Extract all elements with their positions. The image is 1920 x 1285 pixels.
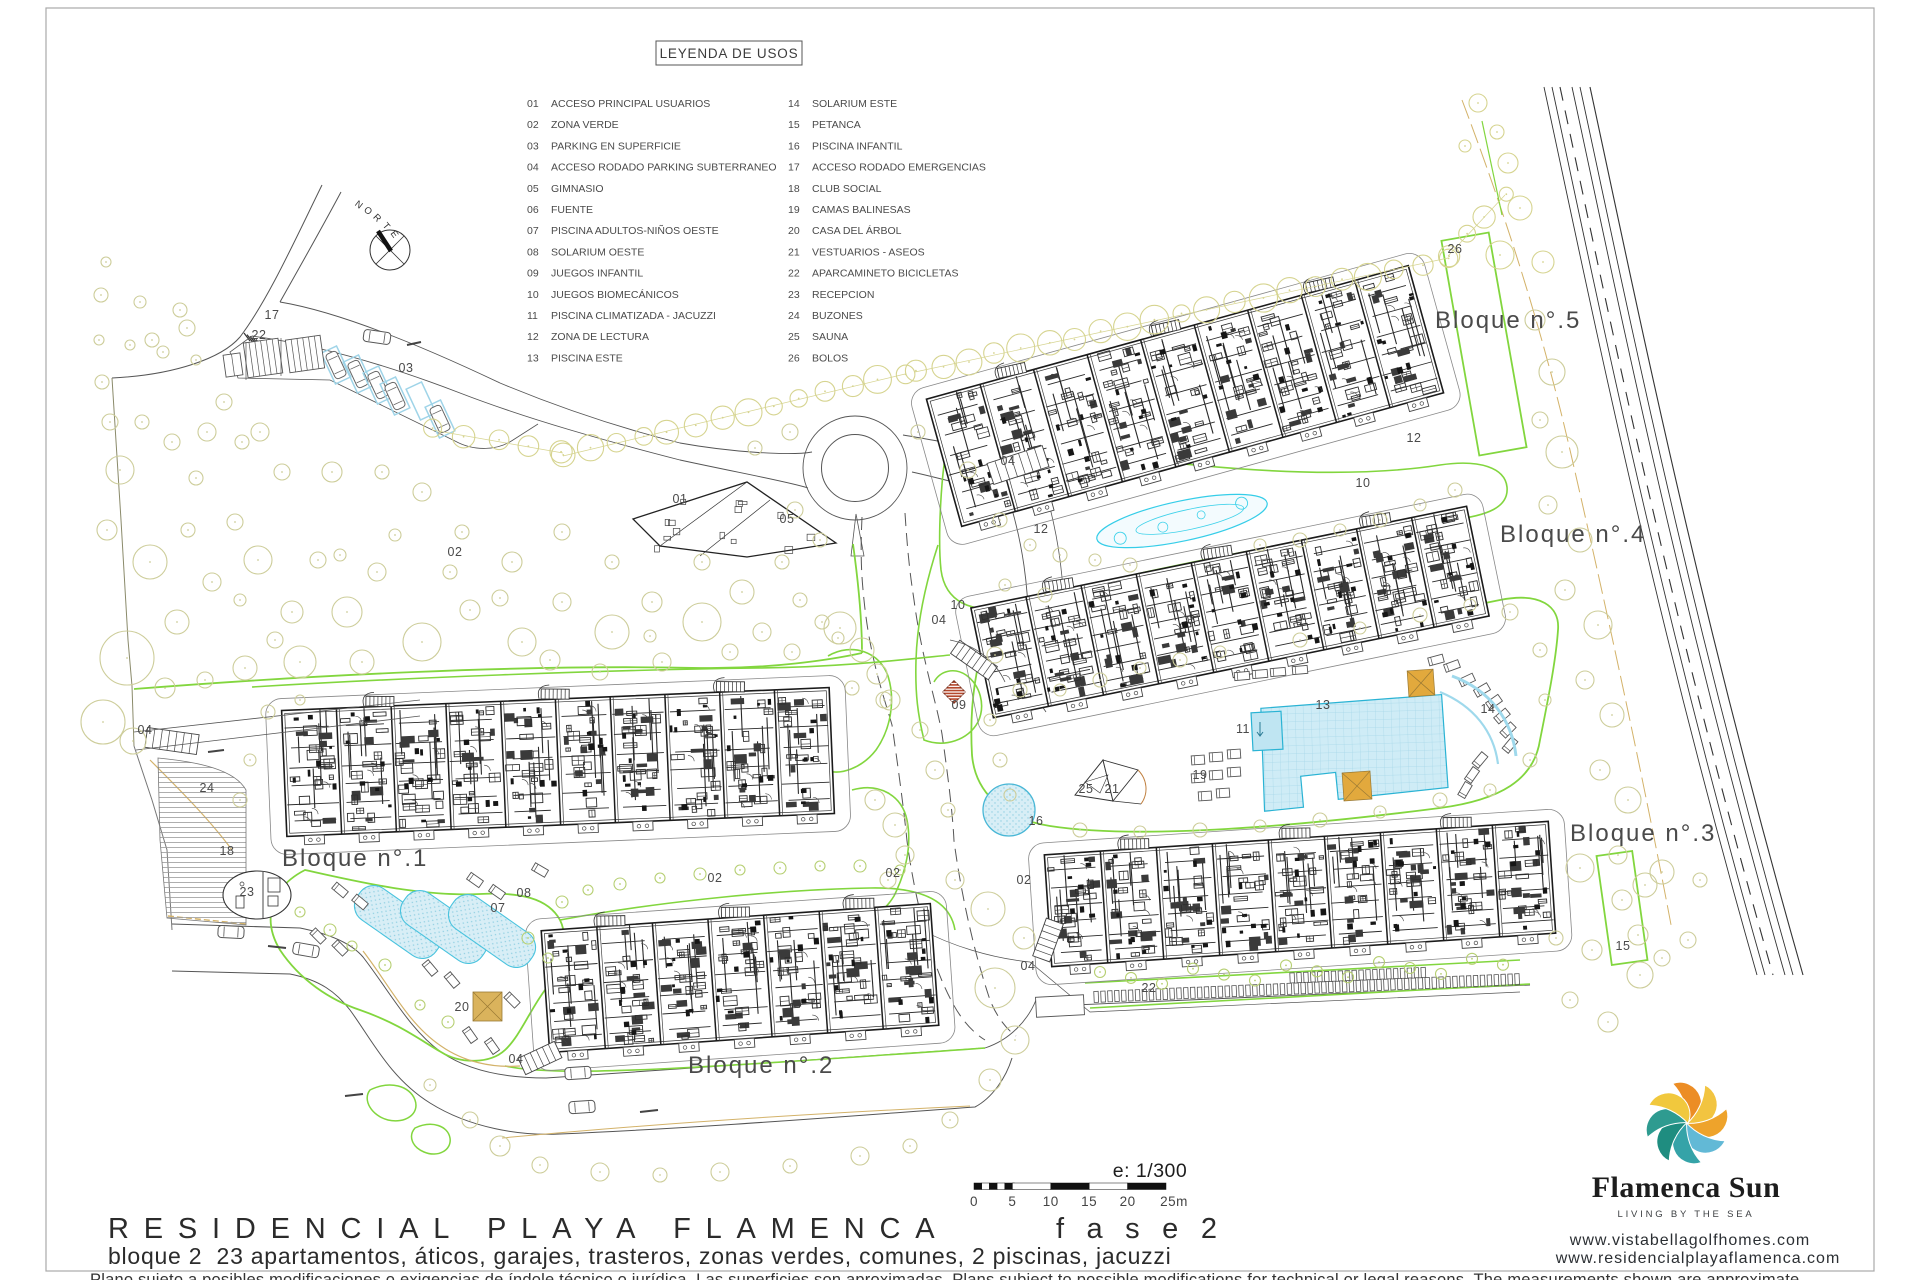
svg-text:PISCINA CLIMATIZADA - JACUZZI: PISCINA CLIMATIZADA - JACUZZI bbox=[551, 310, 716, 322]
svg-text:PISCINA ESTE: PISCINA ESTE bbox=[551, 352, 623, 364]
svg-text:14: 14 bbox=[788, 98, 800, 110]
svg-text:19: 19 bbox=[1193, 768, 1208, 782]
svg-text:10: 10 bbox=[951, 598, 966, 612]
svg-text:02: 02 bbox=[708, 871, 723, 885]
svg-text:21: 21 bbox=[1105, 782, 1120, 796]
svg-text:26: 26 bbox=[1448, 242, 1463, 256]
svg-text:ACCESO PRINCIPAL USUARIOS: ACCESO PRINCIPAL USUARIOS bbox=[551, 98, 710, 110]
svg-text:RESIDENCIAL PLAYA FLAMENCA: RESIDENCIAL PLAYA FLAMENCA bbox=[108, 1213, 949, 1245]
svg-text:12: 12 bbox=[1034, 522, 1049, 536]
svg-text:02: 02 bbox=[1017, 873, 1032, 887]
svg-text:24: 24 bbox=[788, 310, 800, 322]
svg-text:BUZONES: BUZONES bbox=[812, 310, 863, 322]
svg-text:04: 04 bbox=[138, 723, 153, 737]
svg-text:02: 02 bbox=[886, 866, 901, 880]
svg-text:10: 10 bbox=[1356, 476, 1371, 490]
svg-text:ZONA VERDE: ZONA VERDE bbox=[551, 119, 619, 131]
svg-text:FUENTE: FUENTE bbox=[551, 204, 593, 216]
svg-text:SOLARIUM ESTE: SOLARIUM ESTE bbox=[812, 98, 897, 110]
svg-text:ZONA DE LECTURA: ZONA DE LECTURA bbox=[551, 331, 649, 343]
svg-text:VESTUARIOS - ASEOS: VESTUARIOS - ASEOS bbox=[812, 246, 925, 258]
svg-text:16: 16 bbox=[1029, 814, 1044, 828]
svg-text:LIVING BY THE SEA: LIVING BY THE SEA bbox=[1617, 1209, 1754, 1220]
svg-text:02: 02 bbox=[448, 545, 463, 559]
svg-text:01: 01 bbox=[673, 492, 688, 506]
svg-text:Flamenca Sun: Flamenca Sun bbox=[1592, 1171, 1781, 1204]
svg-text:JUEGOS INFANTIL: JUEGOS INFANTIL bbox=[551, 268, 643, 280]
svg-text:10: 10 bbox=[527, 289, 539, 301]
svg-text:05: 05 bbox=[527, 183, 539, 195]
svg-text:08: 08 bbox=[527, 246, 539, 258]
svg-text:CAMAS BALINESAS: CAMAS BALINESAS bbox=[812, 204, 911, 216]
svg-text:06: 06 bbox=[527, 204, 539, 216]
svg-text:04: 04 bbox=[509, 1052, 524, 1066]
svg-text:25: 25 bbox=[1079, 782, 1094, 796]
svg-text:0: 0 bbox=[970, 1194, 978, 1209]
svg-text:11: 11 bbox=[527, 310, 538, 322]
svg-text:20: 20 bbox=[1120, 1194, 1136, 1209]
svg-text:GIMNASIO: GIMNASIO bbox=[551, 183, 604, 195]
svg-text:09: 09 bbox=[527, 268, 539, 280]
svg-text:25m: 25m bbox=[1160, 1194, 1188, 1209]
svg-text:07: 07 bbox=[527, 225, 539, 237]
svg-text:5: 5 bbox=[1008, 1194, 1016, 1209]
svg-text:10: 10 bbox=[1043, 1194, 1059, 1209]
svg-text:18: 18 bbox=[788, 183, 800, 195]
svg-text:21: 21 bbox=[788, 246, 800, 258]
svg-text:PISCINA INFANTIL: PISCINA INFANTIL bbox=[812, 140, 903, 152]
svg-text:Bloque n°.4: Bloque n°.4 bbox=[1500, 521, 1646, 548]
svg-text:Plano sujeto a posibles modifi: Plano sujeto a posibles modificaciones o… bbox=[90, 1271, 1804, 1280]
svg-text:16: 16 bbox=[788, 140, 800, 152]
svg-text:LEYENDA DE USOS: LEYENDA DE USOS bbox=[660, 46, 799, 61]
svg-text:04: 04 bbox=[932, 613, 947, 627]
svg-text:15: 15 bbox=[1081, 1194, 1097, 1209]
svg-text:14: 14 bbox=[1481, 702, 1496, 716]
svg-text:08: 08 bbox=[517, 886, 532, 900]
svg-text:03: 03 bbox=[527, 140, 539, 152]
svg-text:ACCESO RODADO EMERGENCIAS: ACCESO RODADO EMERGENCIAS bbox=[812, 162, 986, 174]
svg-text:22: 22 bbox=[788, 268, 800, 280]
svg-text:05: 05 bbox=[780, 512, 795, 526]
svg-text:fase2: fase2 bbox=[1056, 1213, 1239, 1245]
svg-text:25: 25 bbox=[788, 331, 800, 343]
svg-text:22: 22 bbox=[252, 328, 267, 342]
svg-text:13: 13 bbox=[527, 352, 539, 364]
svg-text:04: 04 bbox=[1021, 959, 1036, 973]
svg-text:20: 20 bbox=[455, 1000, 470, 1014]
svg-text:17: 17 bbox=[788, 162, 800, 174]
svg-text:01: 01 bbox=[527, 98, 539, 110]
svg-text:23: 23 bbox=[788, 289, 800, 301]
svg-text:12: 12 bbox=[527, 331, 539, 343]
svg-text:PETANCA: PETANCA bbox=[812, 119, 861, 131]
svg-text:CASA DEL ÁRBOL: CASA DEL ÁRBOL bbox=[812, 224, 902, 237]
svg-text:22: 22 bbox=[1142, 981, 1157, 995]
svg-text:www.residencialplayaflamenca.c: www.residencialplayaflamenca.com bbox=[1555, 1250, 1841, 1267]
svg-text:12: 12 bbox=[1407, 431, 1422, 445]
svg-text:20: 20 bbox=[788, 225, 800, 237]
svg-text:23: 23 bbox=[240, 885, 255, 899]
svg-text:19: 19 bbox=[788, 204, 800, 216]
svg-text:Bloque n°.1: Bloque n°.1 bbox=[282, 845, 428, 872]
svg-text:Bloque n°.3: Bloque n°.3 bbox=[1570, 820, 1716, 847]
svg-text:04: 04 bbox=[1001, 454, 1016, 468]
svg-text:15: 15 bbox=[1616, 939, 1631, 953]
svg-text:CLUB SOCIAL: CLUB SOCIAL bbox=[812, 183, 882, 195]
svg-text:BOLOS: BOLOS bbox=[812, 352, 848, 364]
svg-text:11: 11 bbox=[1236, 722, 1250, 736]
svg-text:18: 18 bbox=[220, 844, 235, 858]
svg-text:bloque 2 23 apartamentos, áti: bloque 2 23 apartamentos, áticos, garaje… bbox=[108, 1243, 1172, 1269]
svg-text:SAUNA: SAUNA bbox=[812, 331, 848, 343]
svg-text:03: 03 bbox=[399, 361, 414, 375]
svg-text:SOLARIUM OESTE: SOLARIUM OESTE bbox=[551, 246, 644, 258]
svg-text:RECEPCION: RECEPCION bbox=[812, 289, 874, 301]
svg-text:07: 07 bbox=[491, 901, 506, 915]
svg-text:www.vistabellagolfhomes.com: www.vistabellagolfhomes.com bbox=[1569, 1232, 1810, 1249]
svg-text:24: 24 bbox=[200, 781, 215, 795]
svg-text:PARKING EN SUPERFICIE: PARKING EN SUPERFICIE bbox=[551, 140, 681, 152]
svg-text:Bloque n°.5: Bloque n°.5 bbox=[1435, 307, 1581, 334]
svg-text:17: 17 bbox=[265, 308, 280, 322]
svg-text:Bloque n°.2: Bloque n°.2 bbox=[688, 1052, 834, 1079]
svg-text:04: 04 bbox=[527, 162, 539, 174]
svg-text:APARCAMINETO BICICLETAS: APARCAMINETO BICICLETAS bbox=[812, 268, 958, 280]
svg-text:e: 1/300: e: 1/300 bbox=[1113, 1160, 1187, 1182]
svg-text:PISCINA ADULTOS-NIÑOS OESTE: PISCINA ADULTOS-NIÑOS OESTE bbox=[551, 224, 719, 237]
svg-text:15: 15 bbox=[788, 119, 800, 131]
svg-text:02: 02 bbox=[527, 119, 539, 131]
svg-text:JUEGOS BIOMECÁNICOS: JUEGOS BIOMECÁNICOS bbox=[551, 288, 679, 301]
svg-text:ACCESO RODADO PARKING SUBTERRA: ACCESO RODADO PARKING SUBTERRANEO bbox=[551, 162, 777, 174]
svg-text:09: 09 bbox=[952, 698, 967, 712]
svg-text:13: 13 bbox=[1316, 698, 1331, 712]
svg-text:26: 26 bbox=[788, 352, 800, 364]
